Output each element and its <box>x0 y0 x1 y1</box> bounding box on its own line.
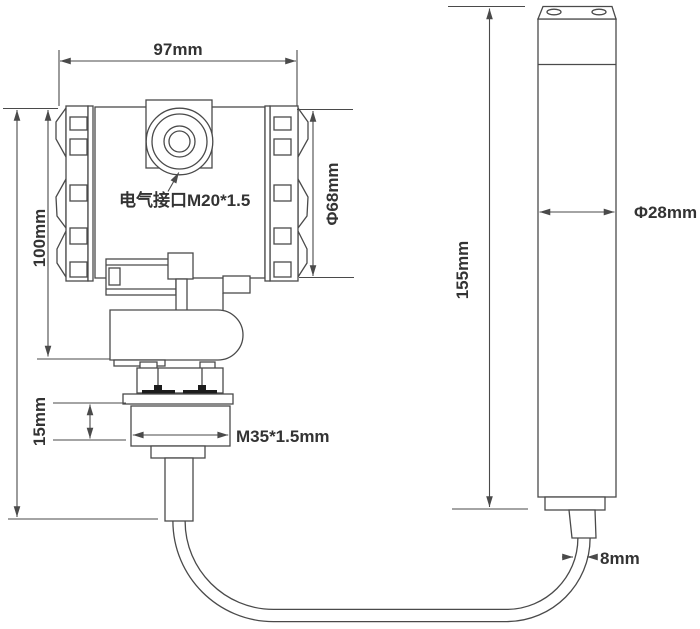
label-thread-length: 15mm <box>30 397 49 446</box>
label-housing-diameter: Φ68mm <box>323 162 342 225</box>
right-flange-clamps <box>298 108 308 277</box>
probe-neck <box>569 510 596 538</box>
transmitter-housing <box>56 100 308 458</box>
cable-gland-collar <box>151 446 205 458</box>
thread-nut <box>131 406 230 446</box>
dimension-probe-length: 155mm <box>448 7 528 510</box>
cable <box>179 514 584 616</box>
sensor-chamber <box>110 310 243 360</box>
technical-drawing: 97mm 100mm Φ68mm 电气接口M20*1.5 15mm <box>0 0 700 629</box>
label-thread-spec: M35*1.5mm <box>236 427 330 446</box>
left-flange-clamps <box>56 108 66 277</box>
diaphragm-block <box>137 368 223 393</box>
label-probe-diameter: Φ28mm <box>634 203 697 222</box>
dimension-top-width: 97mm <box>59 40 297 106</box>
mounting-flange <box>123 394 233 404</box>
electrical-gland <box>146 108 213 175</box>
label-top-width: 97mm <box>153 40 202 59</box>
label-cable-diameter: 8mm <box>600 549 640 568</box>
dimension-thread-length: 15mm <box>30 397 126 446</box>
lower-assembly <box>106 253 250 458</box>
label-housing-height: 100mm <box>30 209 49 268</box>
label-probe-length: 155mm <box>453 241 472 300</box>
probe <box>538 7 616 498</box>
probe-neck-step <box>545 497 605 510</box>
right-flange <box>265 106 308 281</box>
left-flange <box>56 106 93 281</box>
dimension-housing-height: 100mm <box>3 109 110 360</box>
cable-entry-stub <box>165 458 193 521</box>
right-flange-edge <box>265 106 270 281</box>
technical-drawing-page: 97mm 100mm Φ68mm 电气接口M20*1.5 15mm <box>0 0 700 629</box>
probe-top-face <box>538 7 616 20</box>
probe-body <box>538 19 616 497</box>
label-electrical-interface: 电气接口M20*1.5 <box>119 190 250 210</box>
left-flange-edge <box>88 106 93 281</box>
